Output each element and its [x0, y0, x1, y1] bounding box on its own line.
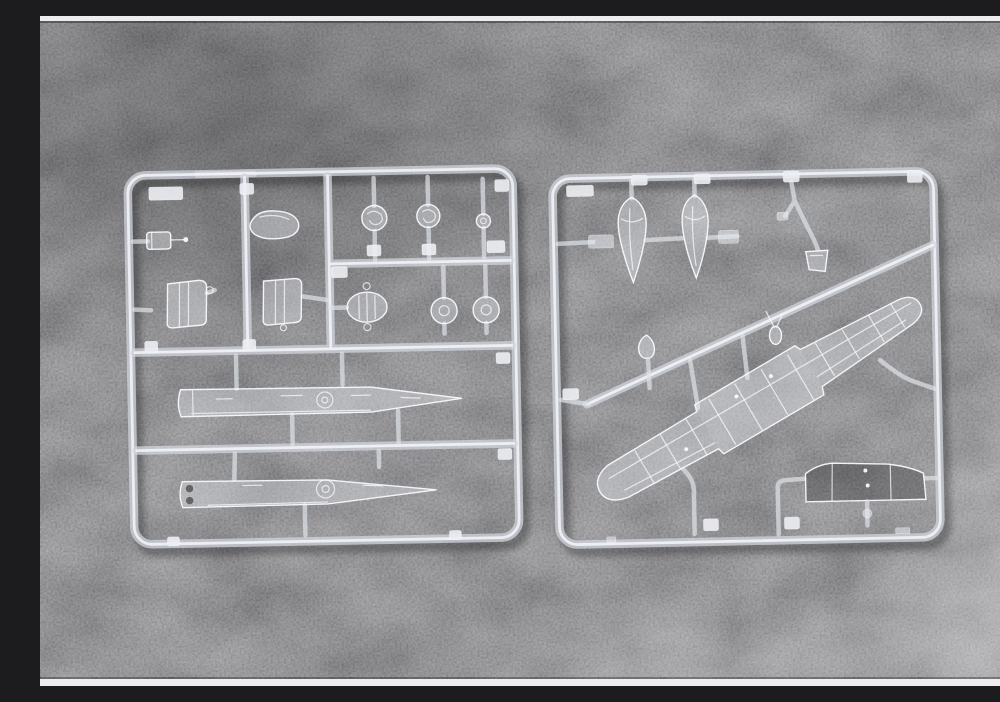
bottom-border-shadow [40, 677, 1000, 679]
tag [331, 267, 347, 278]
outline [476, 214, 490, 228]
tag [496, 352, 510, 363]
tag [240, 183, 254, 194]
bottom-border-strip [40, 679, 1000, 686]
canopy-section-1 [166, 280, 214, 328]
outline [262, 278, 302, 325]
ejector-mark [896, 528, 910, 534]
tag [367, 245, 381, 256]
tag [149, 187, 183, 201]
photo-canvas [40, 16, 1000, 686]
stem-knob [863, 509, 872, 518]
runner-clip [718, 230, 738, 243]
tag [783, 171, 799, 182]
outline [147, 232, 171, 249]
product-photo: Product photograph: two transparent inje… [40, 16, 1000, 686]
outline [250, 210, 299, 239]
outline [362, 205, 387, 230]
tag [422, 244, 436, 255]
outline [806, 250, 828, 271]
tag [907, 170, 922, 182]
tag [694, 174, 710, 184]
round-lens-part-1 [362, 205, 387, 230]
outline [431, 297, 457, 323]
top-border-strip [40, 16, 1000, 21]
indent-1 [185, 485, 193, 493]
stem [648, 359, 650, 388]
tag [145, 341, 158, 352]
outline [473, 297, 499, 323]
outline [805, 461, 926, 502]
branch-clip [777, 212, 788, 220]
windscreen-blob-part [250, 210, 299, 239]
tag [703, 519, 718, 531]
outline [769, 326, 781, 344]
outline [417, 204, 440, 227]
round-light-part-2 [473, 297, 499, 323]
tag [563, 389, 579, 400]
tag [784, 517, 799, 529]
tag [449, 530, 461, 539]
tag [498, 448, 512, 459]
small-lens-part [476, 214, 490, 228]
tag [243, 339, 256, 350]
round-light-part-1 [431, 297, 457, 323]
outline [166, 280, 207, 328]
tag [487, 240, 505, 252]
tag [495, 179, 509, 191]
tag [631, 175, 647, 185]
round-lens-part-2 [417, 204, 440, 227]
indent-2 [186, 497, 194, 505]
tag [566, 185, 593, 197]
tag [167, 537, 179, 546]
ejector-mark [607, 537, 616, 543]
runner-clip [588, 235, 613, 249]
top-border-shadow [40, 21, 1000, 23]
